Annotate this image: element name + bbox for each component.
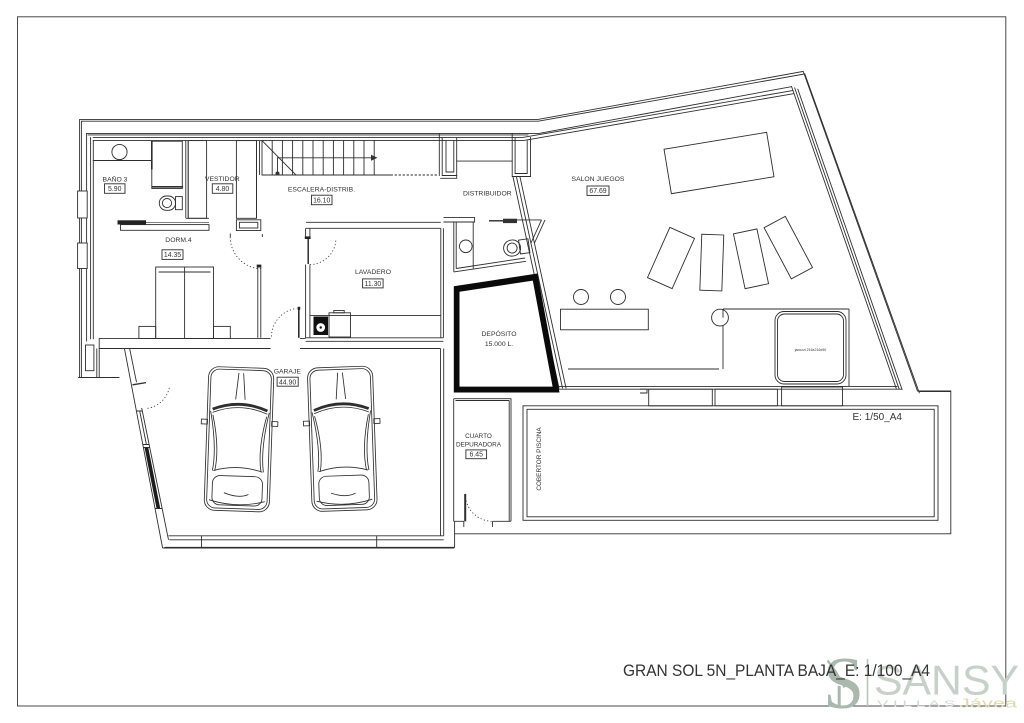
svg-text:DISTRIBUIDOR: DISTRIBUIDOR <box>463 191 512 198</box>
svg-text:COBERTOR PISCINA: COBERTOR PISCINA <box>536 427 543 491</box>
svg-text:15.000 L.: 15.000 L. <box>485 341 513 348</box>
svg-text:S: S <box>823 643 864 723</box>
svg-text:16.10: 16.10 <box>313 197 330 204</box>
svg-text:6.45: 6.45 <box>469 451 483 458</box>
svg-text:jacuzzi 216x216x90: jacuzzi 216x216x90 <box>794 348 827 352</box>
svg-text:SALON JUEGOS: SALON JUEGOS <box>572 176 625 183</box>
svg-text:LAVADERO: LAVADERO <box>355 269 391 276</box>
svg-text:DEPURADORA: DEPURADORA <box>456 442 502 449</box>
svg-text:44.90: 44.90 <box>279 379 296 386</box>
svg-text:V I L L A S: V I L L A S <box>877 698 956 708</box>
svg-text:DORM.4: DORM.4 <box>165 237 192 244</box>
svg-text:11.30: 11.30 <box>365 281 382 288</box>
svg-text:CUARTO: CUARTO <box>465 433 492 440</box>
svg-text:4.80: 4.80 <box>216 186 230 193</box>
svg-text:14.35: 14.35 <box>164 252 181 259</box>
svg-text:E: 1/50_A4: E: 1/50_A4 <box>853 412 903 423</box>
svg-text:ESCALERA-DISTRIB.: ESCALERA-DISTRIB. <box>288 186 355 193</box>
svg-text:GRAN SOL 5N_PLANTA BAJA_E: 1/1: GRAN SOL 5N_PLANTA BAJA_E: 1/100_A4 <box>623 662 930 680</box>
svg-text:BAÑO 3: BAÑO 3 <box>103 174 128 183</box>
svg-text:Jávea: Jávea <box>959 697 1017 711</box>
svg-text:VESTIDOR: VESTIDOR <box>205 176 240 183</box>
svg-text:DEPÓSITO: DEPÓSITO <box>482 329 517 338</box>
svg-text:GARAJE: GARAJE <box>274 369 302 376</box>
svg-text:5.90: 5.90 <box>108 186 122 193</box>
svg-text:67.69: 67.69 <box>589 188 606 195</box>
